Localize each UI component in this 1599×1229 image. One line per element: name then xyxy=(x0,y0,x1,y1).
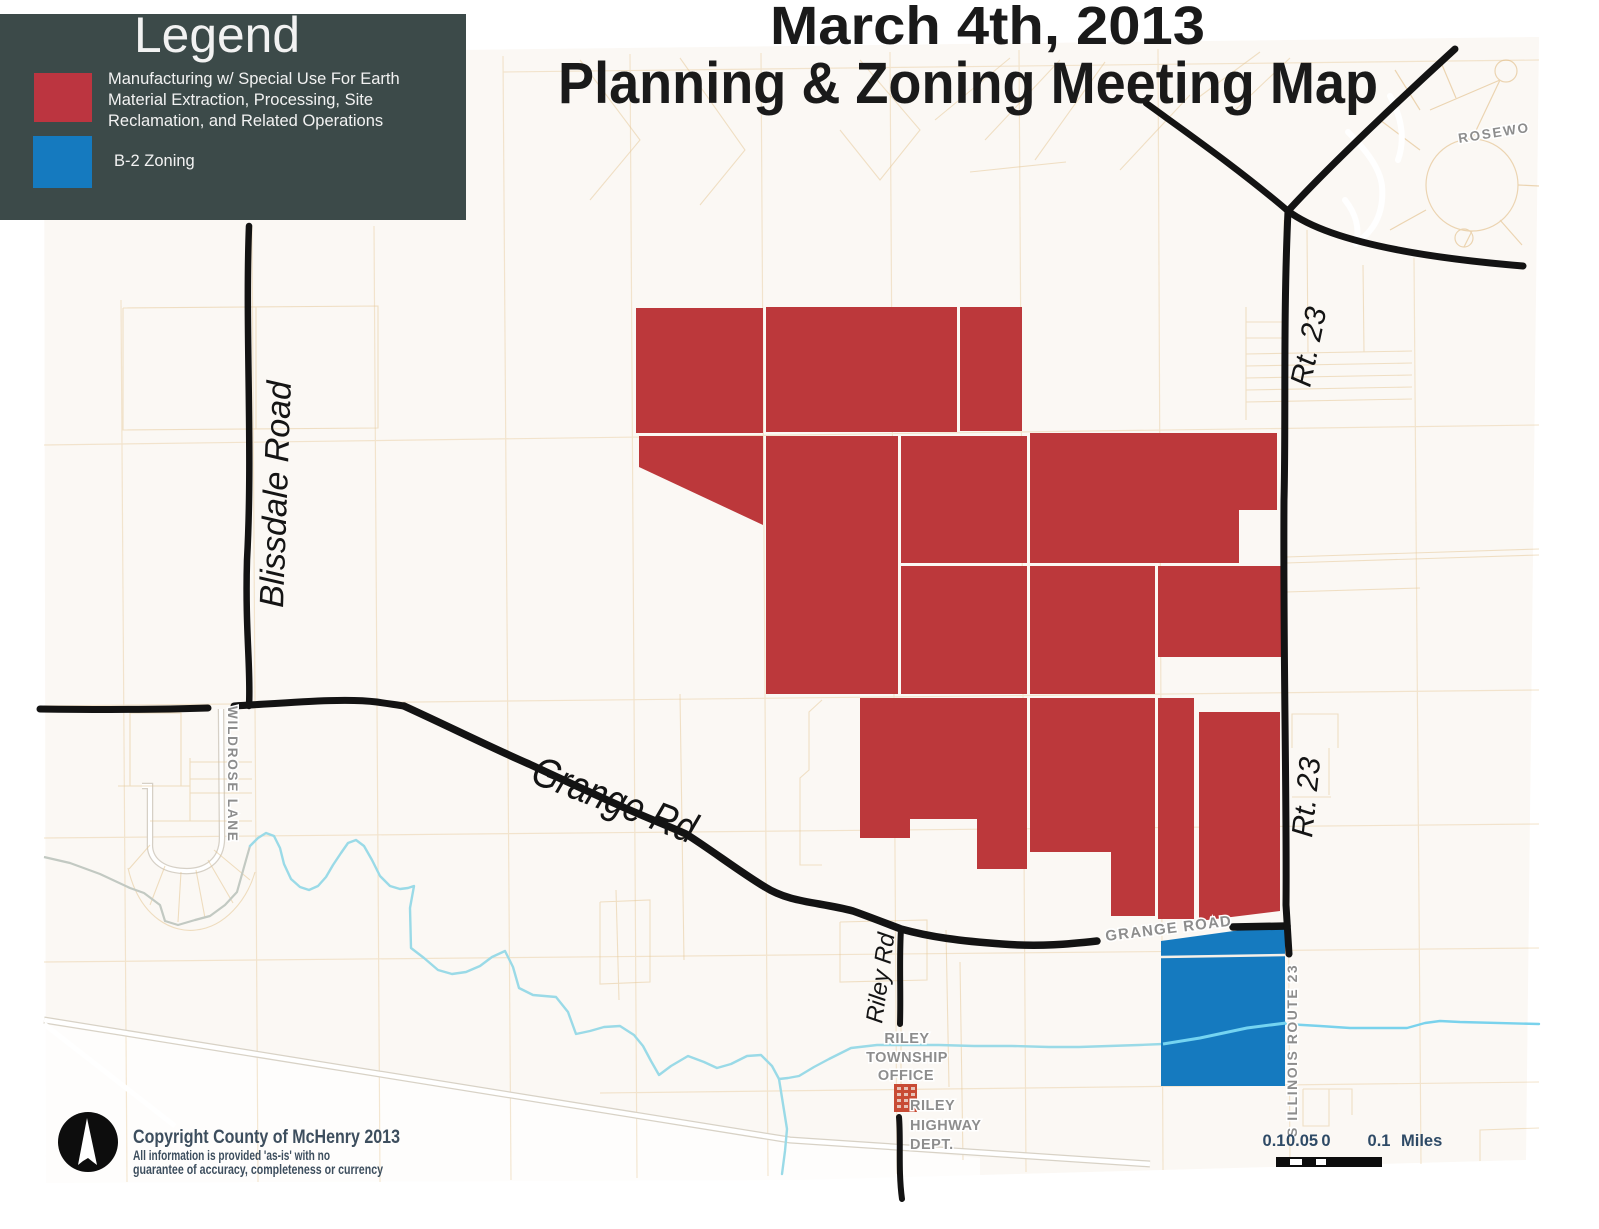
svg-text:OFFICE: OFFICE xyxy=(878,1068,934,1084)
svg-text:0.1: 0.1 xyxy=(1263,1132,1286,1150)
svg-text:Blissdale Road: Blissdale Road xyxy=(253,379,299,608)
svg-text:B-2 Zoning: B-2 Zoning xyxy=(114,152,195,170)
svg-text:0.1: 0.1 xyxy=(1368,1132,1391,1150)
svg-text:Manufacturing w/ Special Use F: Manufacturing w/ Special Use For Earth xyxy=(108,70,400,88)
svg-text:0.05: 0.05 xyxy=(1286,1132,1318,1150)
svg-text:Reclamation, and Related Opera: Reclamation, and Related Operations xyxy=(108,112,383,130)
svg-text:HIGHWAY: HIGHWAY xyxy=(910,1118,981,1134)
svg-text:S ILLINOIS ROUTE 23: S ILLINOIS ROUTE 23 xyxy=(1284,964,1300,1137)
svg-text:TOWNSHIP: TOWNSHIP xyxy=(866,1050,948,1066)
svg-text:guarantee of accuracy, complet: guarantee of accuracy, completeness or c… xyxy=(133,1161,383,1177)
svg-text:0: 0 xyxy=(1321,1132,1330,1150)
svg-text:Miles: Miles xyxy=(1401,1132,1442,1150)
svg-text:RILEY: RILEY xyxy=(910,1098,955,1114)
svg-text:Legend: Legend xyxy=(134,7,300,63)
svg-text:RILEY: RILEY xyxy=(884,1031,929,1047)
svg-text:Material Extraction, Processin: Material Extraction, Processing, Site xyxy=(108,91,373,109)
svg-text:WILDROSE LANE: WILDROSE LANE xyxy=(225,706,240,843)
svg-text:Planning & Zoning Meeting Map: Planning & Zoning Meeting Map xyxy=(558,51,1378,116)
svg-text:March 4th, 2013: March 4th, 2013 xyxy=(770,0,1205,56)
svg-text:DEPT.: DEPT. xyxy=(910,1137,954,1153)
svg-text:Copyright County of McHenry 20: Copyright County of McHenry 2013 xyxy=(133,1127,400,1148)
